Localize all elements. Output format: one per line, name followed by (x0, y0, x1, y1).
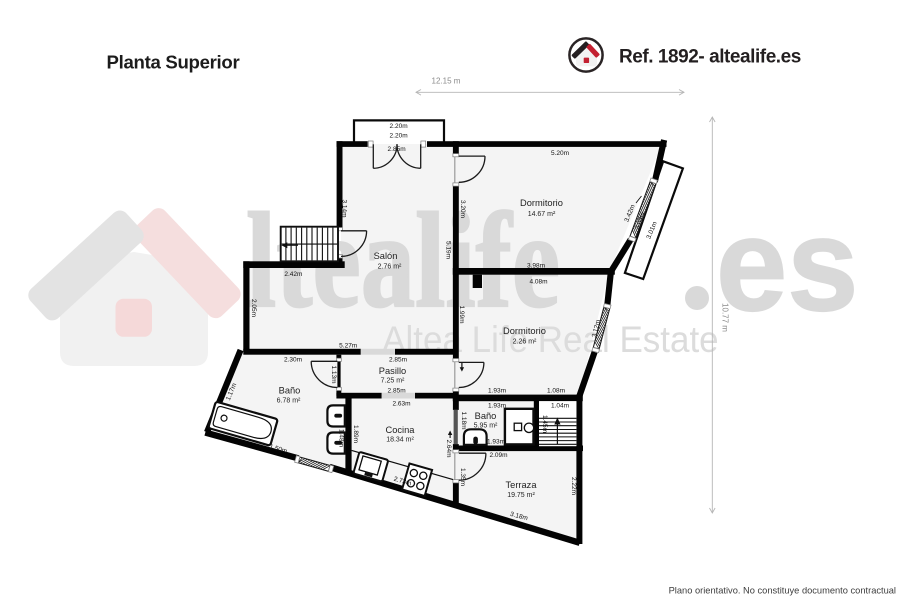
svg-text:Dormitorio: Dormitorio (503, 326, 546, 336)
svg-text:Planta Superior: Planta Superior (107, 51, 240, 72)
svg-text:1.18m: 1.18m (460, 411, 467, 429)
svg-text:10.77 m: 10.77 m (721, 303, 730, 332)
svg-text:Plano orientativo. No constitu: Plano orientativo. No constituye documen… (669, 586, 896, 596)
svg-text:Cocina: Cocina (386, 425, 416, 435)
svg-text:2.05m: 2.05m (250, 299, 257, 317)
svg-text:2.85m: 2.85m (388, 387, 406, 394)
svg-text:2.64m: 2.64m (445, 439, 452, 457)
svg-text:2.09m: 2.09m (489, 452, 507, 459)
svg-text:2.26 m²: 2.26 m² (513, 339, 537, 346)
svg-text:Salón: Salón (374, 251, 398, 261)
svg-text:2.63m: 2.63m (392, 401, 410, 408)
svg-text:3.98m: 3.98m (527, 262, 545, 269)
svg-text:2.85m: 2.85m (388, 146, 406, 153)
svg-text:1.04m: 1.04m (551, 403, 569, 410)
svg-text:Baño: Baño (279, 386, 301, 396)
svg-text:1.13m: 1.13m (330, 365, 337, 383)
svg-text:5.95 m²: 5.95 m² (474, 423, 498, 430)
svg-text:1.93m: 1.93m (487, 438, 505, 445)
svg-text:1.45m: 1.45m (541, 415, 548, 433)
svg-text:7.25 m²: 7.25 m² (381, 378, 405, 385)
svg-text:Pasillo: Pasillo (379, 366, 406, 376)
svg-text:3.14m: 3.14m (341, 199, 348, 217)
svg-text:Baño: Baño (475, 411, 497, 421)
svg-text:2.76 m²: 2.76 m² (378, 264, 402, 271)
svg-text:1.35m: 1.35m (459, 468, 466, 486)
svg-text:1.93m: 1.93m (488, 387, 506, 394)
svg-text:6.78 m²: 6.78 m² (277, 398, 301, 405)
svg-text:19.75 m²: 19.75 m² (507, 492, 535, 499)
svg-text:Dormitorio: Dormitorio (520, 198, 563, 208)
svg-text:2.42m: 2.42m (284, 271, 302, 278)
svg-text:4.08m: 4.08m (529, 279, 547, 286)
svg-text:18.34 m²: 18.34 m² (386, 437, 414, 444)
svg-text:2.85m: 2.85m (389, 356, 407, 363)
svg-text:5.27m: 5.27m (339, 342, 357, 349)
svg-text:Ref. 1892- altealife.es: Ref. 1892- altealife.es (619, 47, 801, 68)
svg-text:14.67 m²: 14.67 m² (528, 211, 556, 218)
svg-text:1.48m: 1.48m (337, 429, 344, 447)
svg-text:1.08m: 1.08m (547, 387, 565, 394)
svg-text:Terraza: Terraza (506, 480, 538, 490)
svg-text:12.15 m: 12.15 m (432, 77, 461, 86)
svg-text:5.20m: 5.20m (551, 150, 569, 157)
svg-text:2.20m: 2.20m (390, 133, 408, 140)
svg-text:1.93m: 1.93m (488, 403, 506, 410)
svg-text:1.99m: 1.99m (458, 305, 465, 323)
svg-text:es: es (716, 190, 858, 338)
svg-text:2.30m: 2.30m (284, 356, 302, 363)
svg-text:1.89m: 1.89m (352, 425, 359, 443)
svg-text:5.19m: 5.19m (445, 241, 452, 259)
svg-text:2.22m: 2.22m (570, 477, 577, 495)
svg-text:3.20m: 3.20m (459, 200, 466, 218)
svg-text:2.20m: 2.20m (390, 123, 408, 130)
